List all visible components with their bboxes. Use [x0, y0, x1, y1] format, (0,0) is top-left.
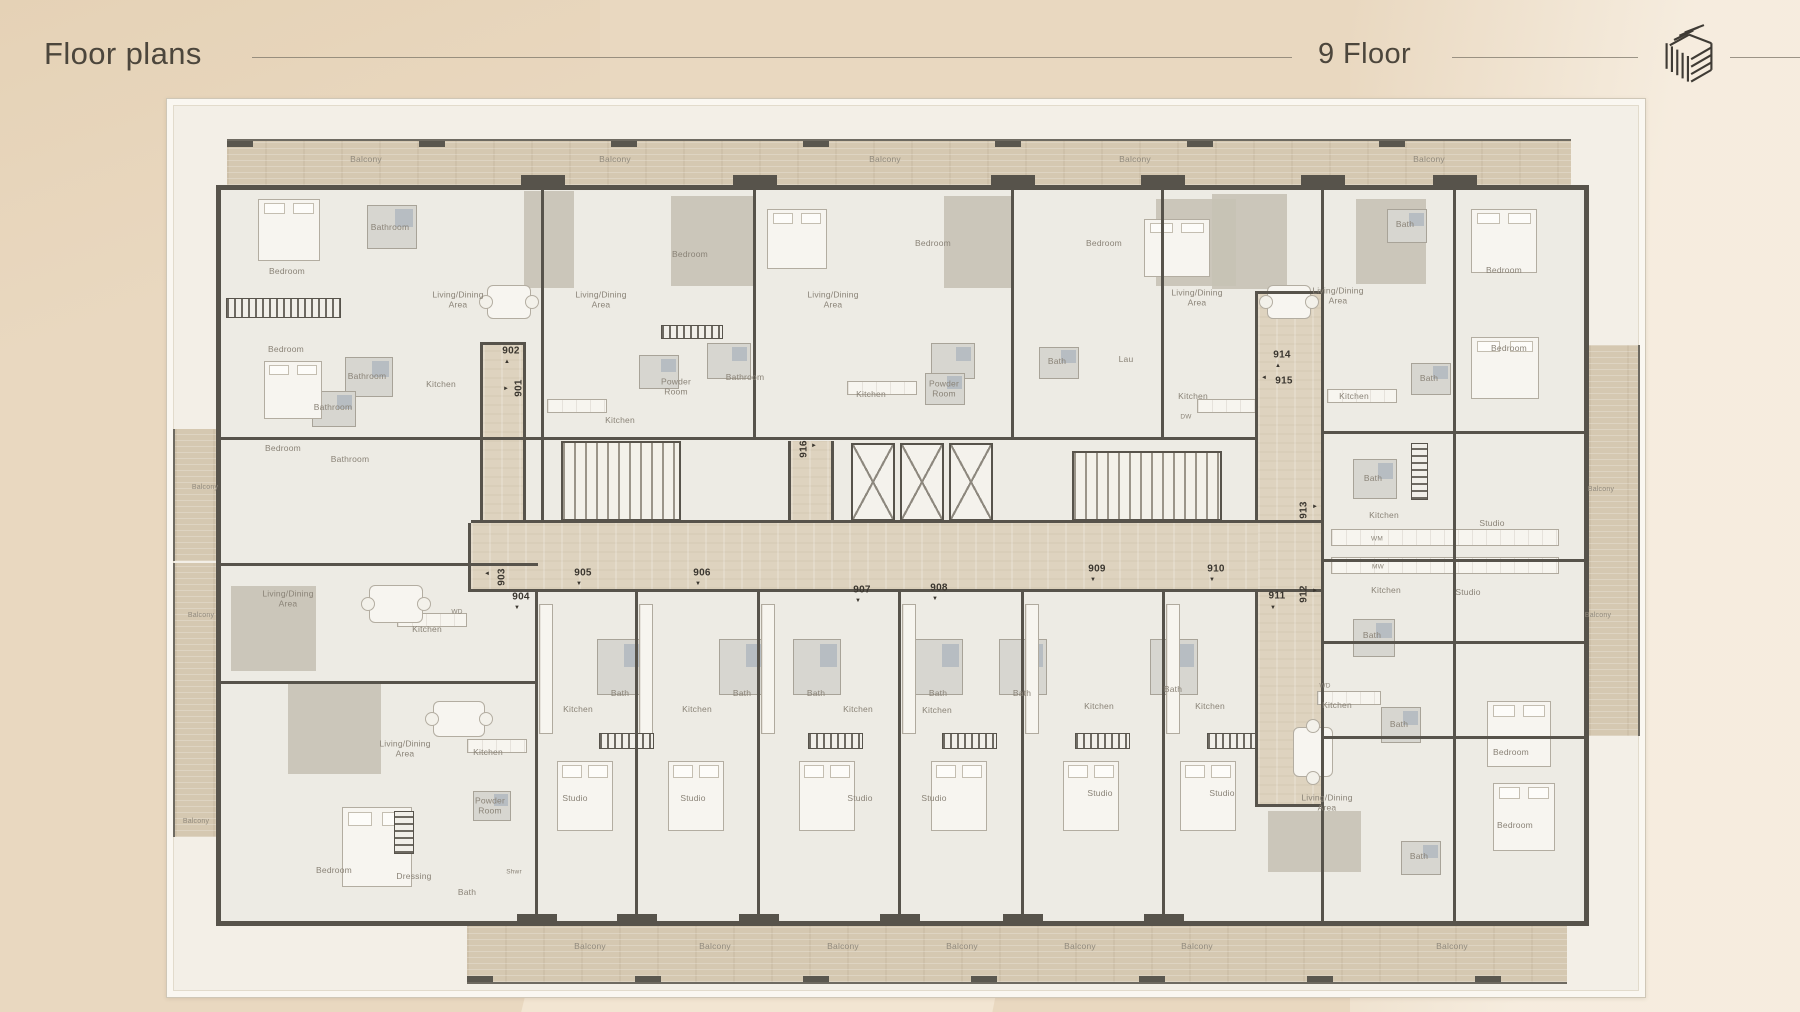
- wall: [1255, 804, 1324, 807]
- pier: [517, 914, 557, 926]
- wall: [753, 185, 756, 437]
- wall: [216, 681, 538, 684]
- tableh: [487, 285, 531, 319]
- pier: [739, 914, 779, 926]
- bed: [1471, 337, 1539, 399]
- wet: [793, 639, 841, 695]
- counterh: [547, 399, 607, 413]
- wall: [480, 342, 526, 345]
- plan-geometry-layer: [167, 99, 1645, 997]
- wall: [635, 589, 638, 926]
- hatchh: [1207, 733, 1257, 749]
- counterv: [761, 604, 775, 734]
- wall: [757, 589, 760, 926]
- page-title: Floor plans: [44, 36, 202, 72]
- pier: [733, 175, 777, 187]
- hatchh: [226, 298, 341, 318]
- gz: [671, 196, 756, 286]
- hatchh: [942, 733, 997, 749]
- wall: [788, 441, 791, 523]
- wall: [541, 185, 544, 437]
- isometric-cube-logo: [1660, 24, 1718, 88]
- wall: [1021, 589, 1024, 926]
- wet: [1039, 347, 1079, 379]
- counterv: [902, 604, 916, 734]
- wall: [1255, 294, 1258, 523]
- gz: [1212, 194, 1287, 289]
- pier: [1003, 914, 1043, 926]
- wall: [471, 520, 1321, 523]
- hatchv: [394, 811, 414, 854]
- wall: [523, 345, 526, 523]
- wet: [925, 373, 965, 405]
- hatchh: [599, 733, 654, 749]
- floor-label: 9 Floor: [1318, 38, 1411, 71]
- wet: [1353, 459, 1397, 499]
- stairs: [1072, 451, 1222, 521]
- gz: [1268, 811, 1361, 872]
- wall: [1321, 641, 1589, 644]
- counterh: [1327, 389, 1397, 403]
- pier: [1301, 175, 1345, 187]
- wall: [1255, 291, 1324, 294]
- wall: [535, 589, 538, 926]
- wall: [468, 523, 471, 592]
- header-rule: [1452, 57, 1638, 58]
- pier: [1433, 175, 1477, 187]
- tablev: [1293, 727, 1333, 777]
- hatchh: [1075, 733, 1130, 749]
- wall: [541, 437, 1258, 440]
- pier: [1141, 175, 1185, 187]
- bed: [258, 199, 320, 261]
- bed: [1180, 761, 1236, 831]
- bed: [1471, 209, 1537, 273]
- pier: [1144, 914, 1184, 926]
- gz: [524, 191, 574, 288]
- wall: [1162, 589, 1165, 926]
- pier: [880, 914, 920, 926]
- header-rule: [1730, 57, 1800, 58]
- wet: [367, 205, 417, 249]
- wet: [639, 355, 679, 389]
- wet: [1353, 619, 1395, 657]
- wall: [1011, 185, 1014, 437]
- bed: [767, 209, 827, 269]
- header-rule: [252, 57, 1292, 58]
- bed: [799, 761, 855, 831]
- wall: [480, 345, 483, 523]
- tableh: [433, 701, 485, 737]
- counterv: [1025, 604, 1039, 734]
- bed: [1144, 219, 1210, 277]
- gz: [231, 586, 316, 671]
- pier: [521, 175, 565, 187]
- bed: [264, 361, 322, 419]
- hatchh: [808, 733, 863, 749]
- counterh: [467, 739, 527, 753]
- counterh: [1317, 691, 1381, 705]
- hatchh: [661, 325, 723, 339]
- bed: [668, 761, 724, 831]
- wall: [1161, 185, 1164, 437]
- wet: [473, 791, 511, 821]
- wall: [1453, 185, 1456, 926]
- gz: [288, 681, 381, 774]
- counterh: [1197, 399, 1257, 413]
- gz: [944, 196, 1013, 288]
- wall: [831, 441, 834, 523]
- wall: [1321, 559, 1589, 562]
- tableh: [369, 585, 423, 623]
- counterv: [1166, 604, 1180, 734]
- wall: [1321, 185, 1324, 926]
- wet: [1401, 841, 1441, 875]
- counterh: [1331, 529, 1559, 546]
- counterh: [847, 381, 917, 395]
- wall: [898, 589, 901, 926]
- bed: [931, 761, 987, 831]
- wet: [1411, 363, 1451, 395]
- wall: [471, 589, 1321, 592]
- counterv: [639, 604, 653, 734]
- floor-plan-sheet: [166, 98, 1646, 998]
- elev: [949, 443, 993, 521]
- bed: [1063, 761, 1119, 831]
- pier: [617, 914, 657, 926]
- hatchv: [1411, 443, 1428, 500]
- stairs: [561, 441, 681, 521]
- pier: [991, 175, 1035, 187]
- elev: [851, 443, 895, 521]
- wet: [1387, 209, 1427, 243]
- counterv: [539, 604, 553, 734]
- bed: [1493, 783, 1555, 851]
- wall: [1321, 736, 1589, 739]
- elev: [900, 443, 944, 521]
- wet: [915, 639, 963, 695]
- wall: [216, 437, 544, 440]
- wall: [1255, 589, 1258, 804]
- wet: [707, 343, 751, 379]
- bed: [557, 761, 613, 831]
- wall: [541, 437, 544, 523]
- wall: [216, 563, 538, 566]
- wall: [1321, 431, 1589, 434]
- bed: [1487, 701, 1551, 767]
